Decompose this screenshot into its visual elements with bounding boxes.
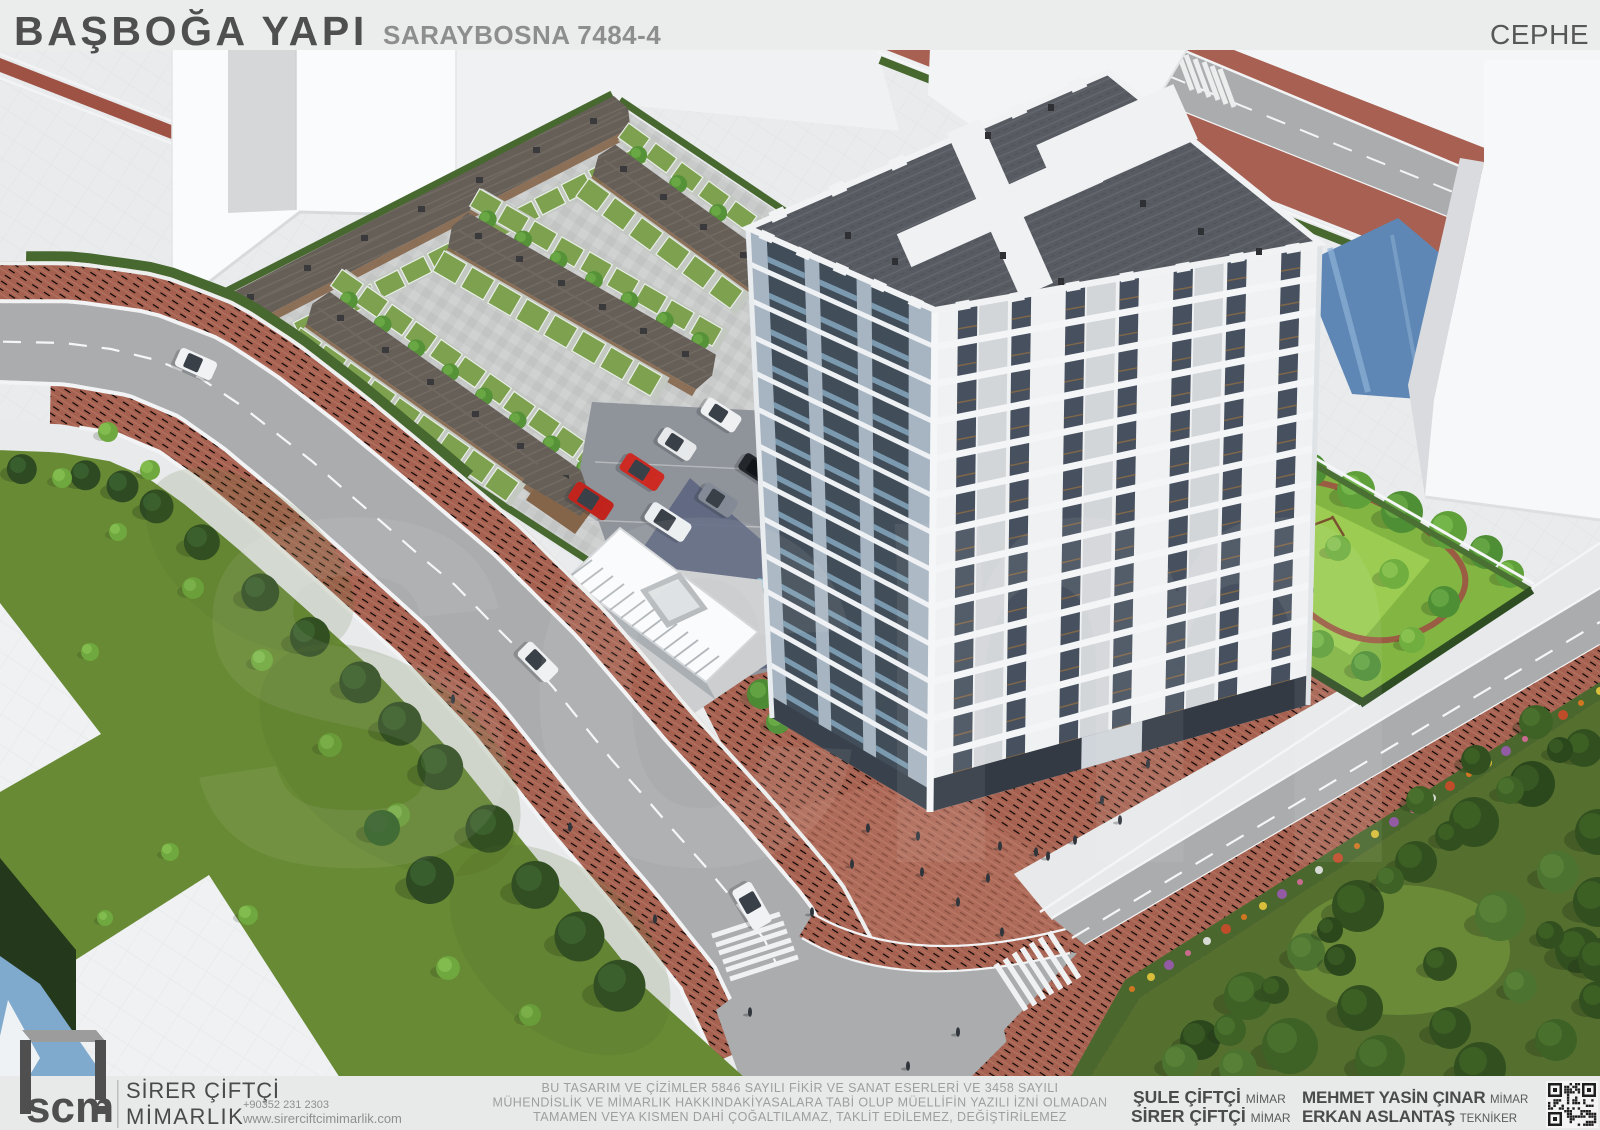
svg-text:BU TASARIM VE ÇİZİMLER 5846 SA: BU TASARIM VE ÇİZİMLER 5846 SAYILI FİKİR… [542,1081,1059,1095]
svg-text:CEPHE: CEPHE [1490,19,1589,50]
svg-text:MÜHENDİSLİK VE MİMARLIK HAKKIN: MÜHENDİSLİK VE MİMARLIK HAKKINDAKİYASALA… [493,1096,1108,1110]
svg-text:BAŞBOĞA YAPI: BAŞBOĞA YAPI [14,8,368,54]
svg-text:MİMARLIK: MİMARLIK [126,1104,244,1129]
svg-text:www.sirerciftcimimarlik.com: www.sirerciftcimimarlik.com [242,1111,402,1126]
svg-text:scm: scm [26,1083,114,1130]
svg-text:SARAYBOSNA 7484-4: SARAYBOSNA 7484-4 [383,20,661,50]
svg-text:TAMAMEN VEYA KISMEN DAHİ ÇOĞAL: TAMAMEN VEYA KISMEN DAHİ ÇOĞALTILAMAZ, T… [533,1109,1067,1124]
svg-text:scm: scm [177,283,1404,998]
svg-text:+90352 231 2303: +90352 231 2303 [243,1099,329,1111]
